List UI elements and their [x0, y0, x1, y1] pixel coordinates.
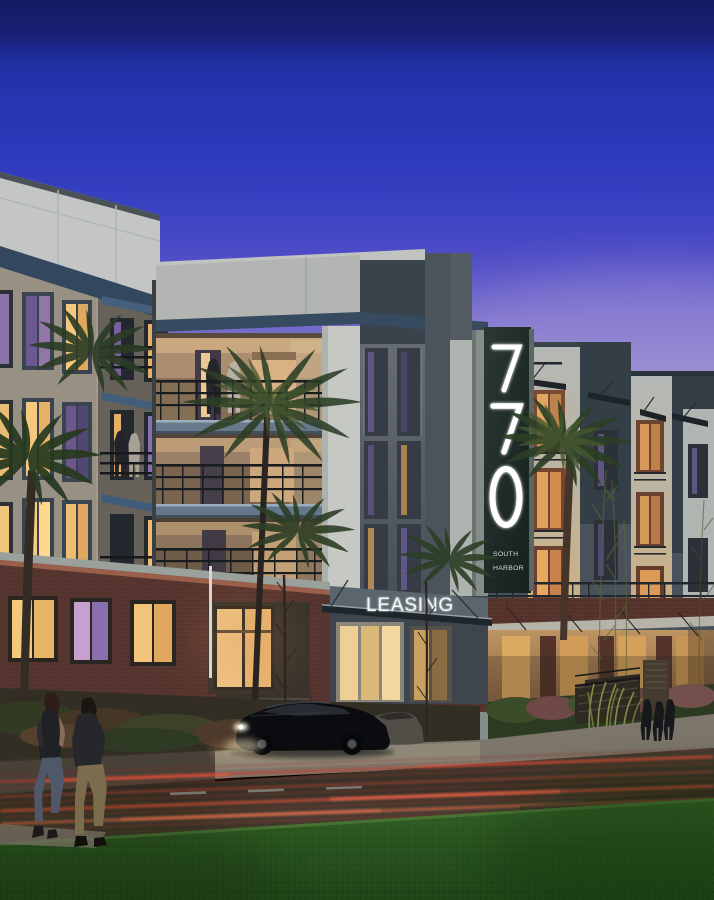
svg-text:HARBOR: HARBOR [493, 565, 524, 572]
svg-text:SOUTH: SOUTH [493, 551, 518, 558]
svg-text:LEASING: LEASING [366, 595, 454, 616]
